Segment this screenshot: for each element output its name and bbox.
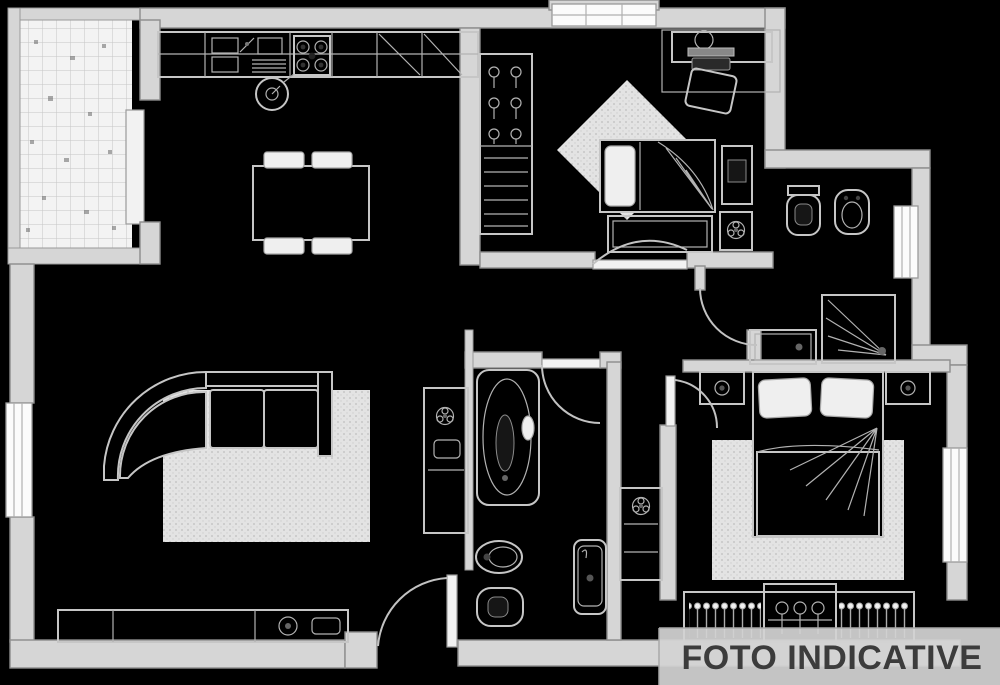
blanket — [757, 452, 879, 536]
wall-south-step — [345, 632, 377, 668]
sofa-cushion-1 — [210, 390, 264, 448]
wall-kitchen-west-lower — [140, 222, 160, 264]
terrace-parapet-north — [8, 8, 140, 20]
terrace-parapet-south — [8, 248, 160, 264]
window-top — [552, 4, 656, 26]
background — [0, 0, 1000, 685]
bathtub-drain — [502, 475, 508, 481]
double-bed — [753, 372, 883, 537]
nightstand-item — [728, 160, 746, 182]
chair-bottom-left — [264, 238, 304, 254]
chair-top-left — [264, 152, 304, 168]
pillow-left — [758, 378, 812, 419]
terrace-tiled-floor — [18, 20, 132, 250]
wall-bathroom2-north-left — [465, 352, 542, 368]
terrace-sliding-door — [126, 110, 144, 224]
floor-plan-svg: FOTO INDICATIVE — [0, 0, 1000, 685]
bedroom2-door-leaf — [666, 376, 675, 426]
chair-bottom-right — [312, 238, 352, 254]
single-bed — [600, 140, 715, 212]
wall-south-left — [10, 640, 345, 668]
sofa-armrest — [318, 372, 332, 456]
bedroom1-door-leaf — [593, 260, 687, 269]
watermark: FOTO INDICATIVE — [659, 628, 1000, 685]
sofa-straight-back — [206, 372, 332, 386]
window-living-west — [6, 403, 32, 517]
wall-living-west-upper — [10, 264, 34, 403]
sofa-cushion-2 — [264, 390, 318, 448]
bathroom2-door-leaf — [542, 359, 600, 368]
pillow — [605, 146, 635, 206]
watermark-label: FOTO INDICATIVE — [682, 639, 983, 677]
terrace-parapet-west — [8, 8, 20, 264]
floor-plan-image: FOTO INDICATIVE — [0, 0, 1000, 685]
keyboard-icon — [688, 48, 734, 56]
wall-north — [140, 8, 785, 28]
bathtub-faucet — [522, 416, 534, 440]
pillow-right — [820, 378, 874, 419]
wall-corridor-east — [607, 362, 621, 640]
window-bedroom2-east — [943, 448, 967, 562]
wall-bathroom1-jamb — [695, 266, 705, 290]
entrance-door-leaf — [447, 575, 457, 647]
wall-living-west-lower — [10, 517, 34, 642]
wall-wing-north — [765, 150, 930, 168]
chair-top-right — [312, 152, 352, 168]
window-bathroom1-east — [894, 206, 918, 278]
wall-corridor-north-left — [480, 252, 595, 268]
